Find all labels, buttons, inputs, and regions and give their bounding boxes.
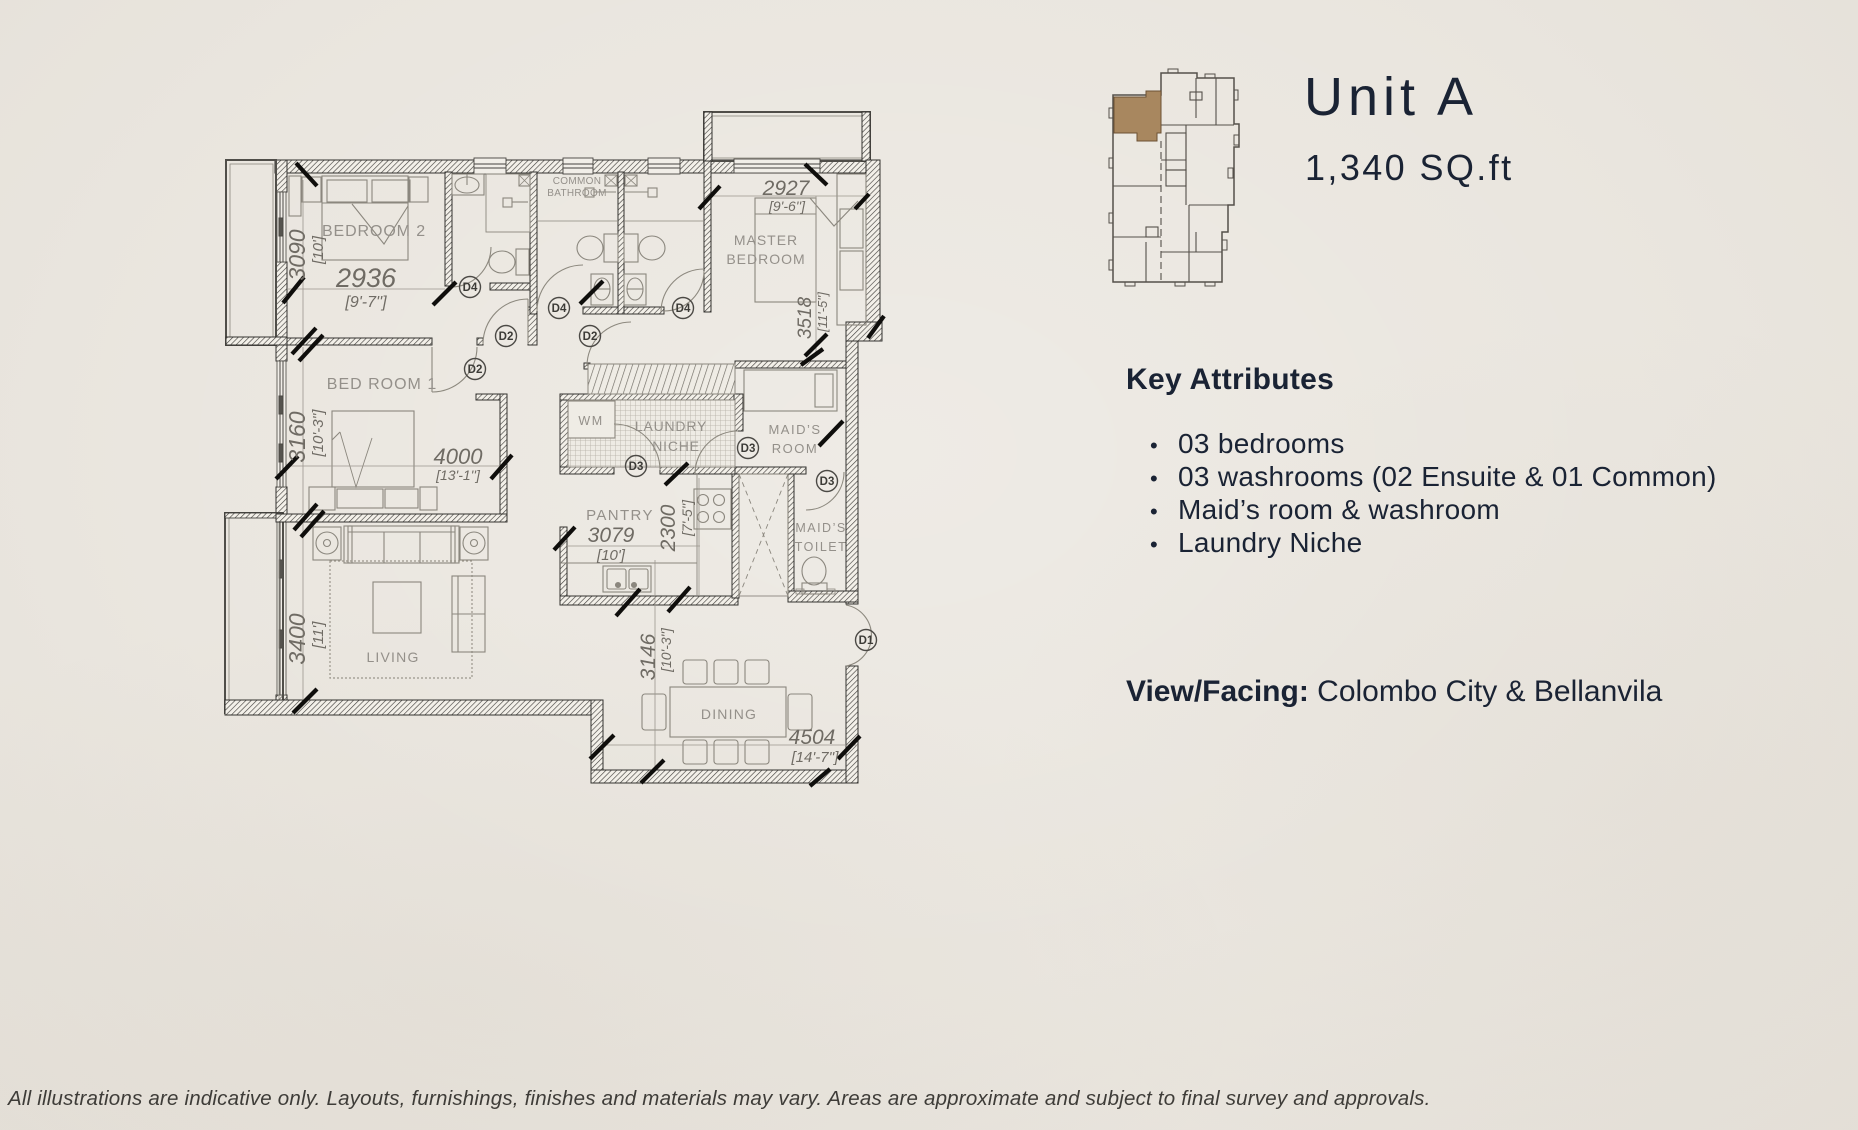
svg-text:2936: 2936	[335, 263, 397, 293]
svg-text:MASTER: MASTER	[734, 232, 798, 248]
svg-text:D2: D2	[468, 364, 483, 376]
svg-text:DINING: DINING	[701, 706, 757, 722]
svg-text:D3: D3	[820, 476, 835, 488]
svg-text:[9'-6'']: [9'-6'']	[768, 198, 806, 214]
svg-text:[10'-3'']: [10'-3'']	[658, 627, 674, 673]
svg-text:[10']: [10']	[310, 235, 327, 265]
svg-text:2927: 2927	[762, 177, 811, 200]
svg-text:D4: D4	[676, 303, 691, 315]
svg-text:NICHE: NICHE	[652, 438, 700, 454]
svg-text:3160: 3160	[284, 411, 310, 462]
svg-text:[7'-5'']: [7'-5'']	[679, 499, 695, 537]
svg-text:3518: 3518	[795, 296, 816, 339]
svg-text:[11'-5'']: [11'-5'']	[815, 292, 830, 333]
svg-text:D3: D3	[629, 461, 644, 473]
svg-text:MAID’S: MAID’S	[795, 521, 846, 535]
svg-text:BED ROOM 1: BED ROOM 1	[327, 376, 437, 393]
svg-text:COMMON: COMMON	[553, 176, 601, 187]
svg-text:[10']: [10']	[596, 547, 626, 564]
svg-text:D4: D4	[463, 282, 478, 294]
svg-text:4504: 4504	[789, 726, 836, 749]
svg-text:3079: 3079	[588, 524, 635, 547]
svg-text:PANTRY: PANTRY	[586, 507, 654, 524]
svg-text:TOILET: TOILET	[795, 540, 848, 554]
svg-text:BEDROOM 2: BEDROOM 2	[322, 223, 426, 240]
svg-text:D2: D2	[583, 331, 598, 343]
svg-text:BATHROOM: BATHROOM	[547, 188, 606, 199]
svg-text:3400: 3400	[284, 613, 310, 664]
svg-text:2300: 2300	[657, 504, 680, 552]
svg-text:LAUNDRY: LAUNDRY	[635, 418, 707, 434]
svg-text:3090: 3090	[284, 229, 310, 280]
svg-text:[10'-3'']: [10'-3'']	[310, 409, 327, 458]
svg-text:D3: D3	[741, 443, 756, 455]
svg-text:ROOM: ROOM	[772, 441, 818, 456]
svg-text:3146: 3146	[637, 633, 660, 680]
svg-text:MAID’S: MAID’S	[768, 422, 821, 437]
svg-text:4000: 4000	[434, 444, 484, 469]
svg-text:D1: D1	[859, 635, 874, 647]
svg-text:LIVING: LIVING	[366, 649, 419, 665]
svg-text:D2: D2	[499, 331, 514, 343]
svg-text:[14'-7'']: [14'-7'']	[791, 749, 840, 766]
svg-text:WM: WM	[578, 414, 603, 428]
svg-text:[13'-1'']: [13'-1'']	[435, 467, 481, 483]
svg-text:[11']: [11']	[310, 621, 327, 650]
svg-text:D4: D4	[552, 303, 567, 315]
svg-text:BEDROOM: BEDROOM	[726, 251, 805, 267]
svg-text:[9'-7'']: [9'-7'']	[344, 294, 387, 311]
